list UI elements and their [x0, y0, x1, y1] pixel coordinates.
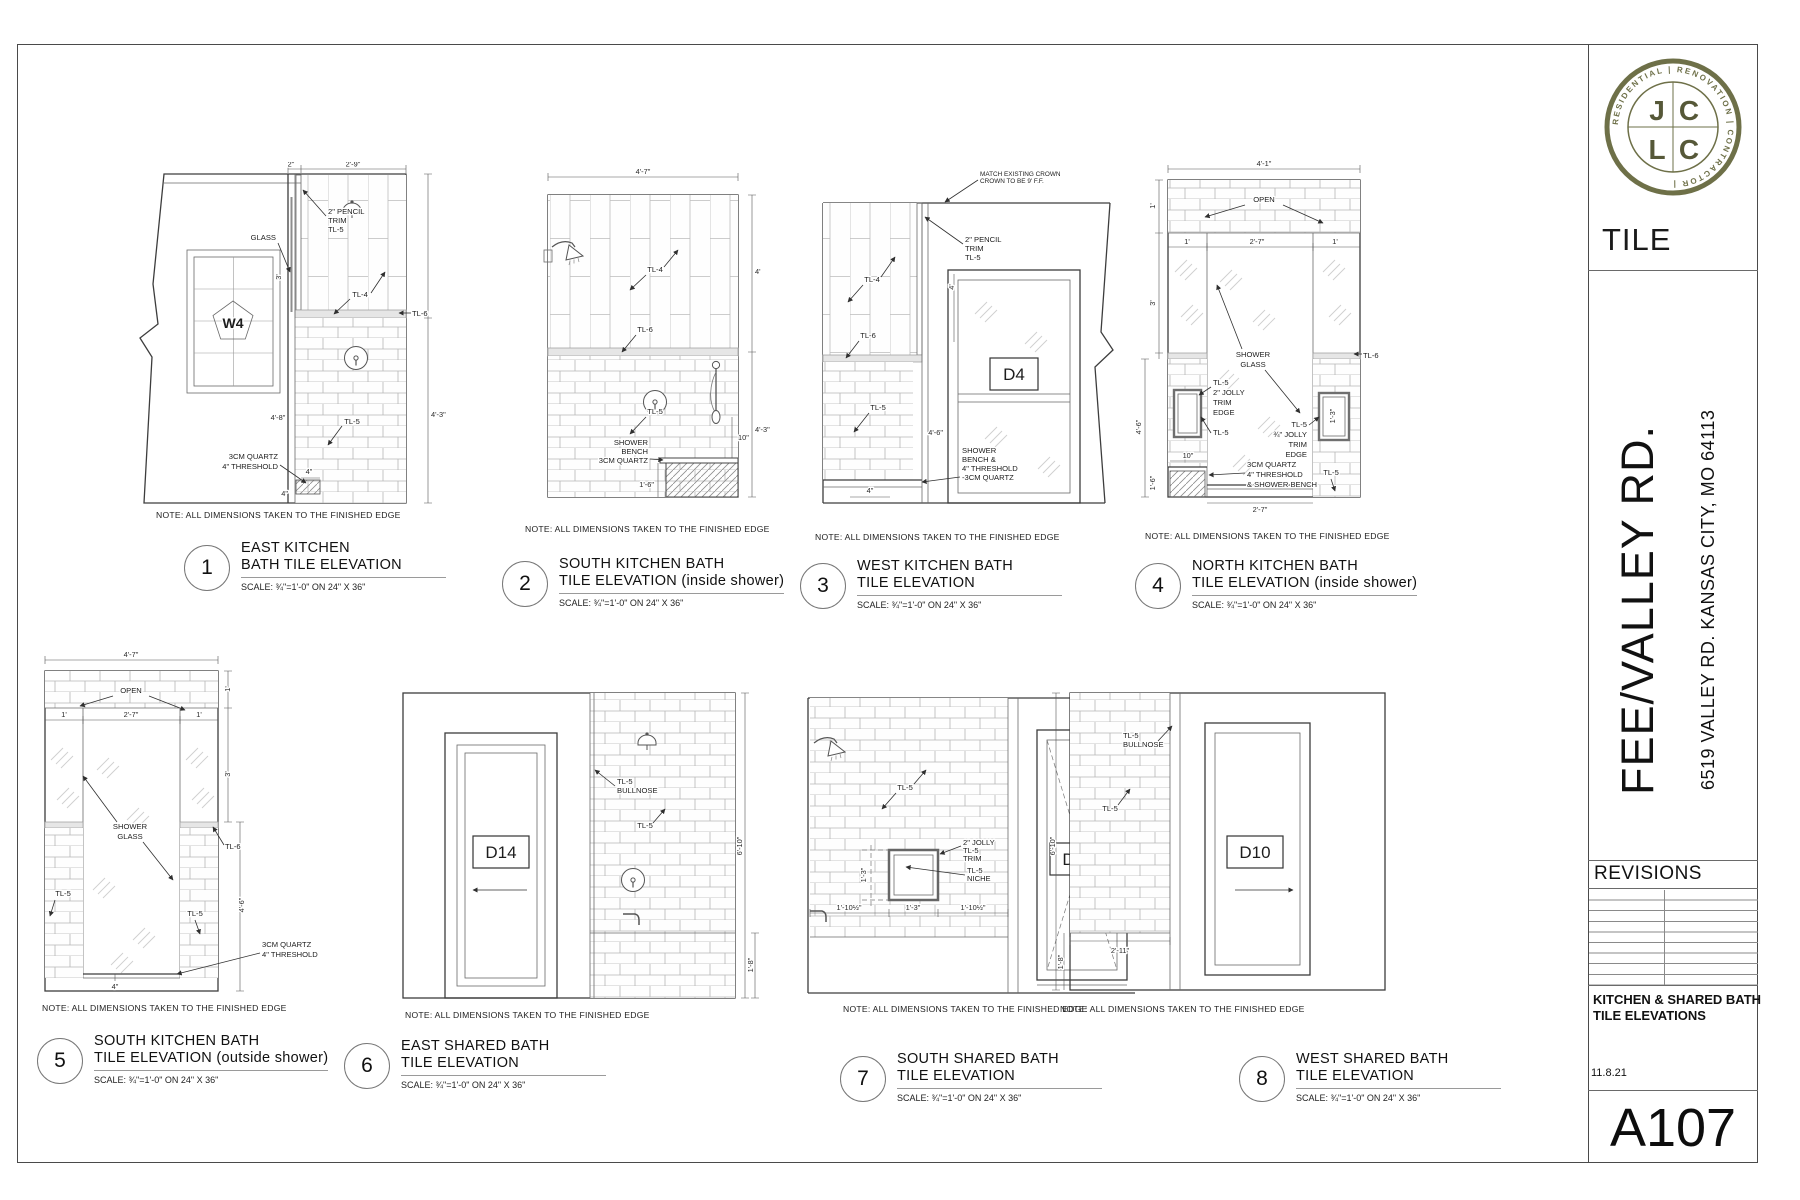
svg-text:3CM QUARTZ: 3CM QUARTZ	[1247, 460, 1297, 469]
company-logo: RESIDENTIAL | RENOVATION | CONTRACTOR | …	[1598, 52, 1748, 202]
svg-text:4'-6": 4'-6"	[237, 897, 246, 912]
revisions-table-divider	[1664, 890, 1665, 985]
svg-text:TL-6: TL-6	[1363, 351, 1379, 360]
drawing-title: SOUTH KITCHEN BATH	[559, 556, 784, 573]
sheet-title: KITCHEN & SHARED BATH TILE ELEVATIONS	[1593, 992, 1761, 1024]
center-glass	[83, 758, 180, 978]
svg-text:2" PENCIL: 2" PENCIL	[965, 235, 1001, 244]
svg-text:1': 1'	[1184, 237, 1190, 246]
svg-text:TL-5: TL-5	[55, 889, 71, 898]
titleblock-rule	[1588, 860, 1758, 861]
drawing-number-bubble: 5	[37, 1038, 83, 1084]
svg-text:1'-10½": 1'-10½"	[961, 903, 986, 912]
elevation-4-north-kitchen-inside: OPEN 4'-1" 1' 2'-7" 1' 1' 3' 4'-6" 10" 1…	[1095, 155, 1395, 515]
svg-text:1'-10½": 1'-10½"	[837, 903, 862, 912]
svg-text:CROWN TO BE 9' F.F.: CROWN TO BE 9' F.F.	[980, 178, 1044, 185]
door: D14	[445, 733, 557, 998]
svg-text:EDGE: EDGE	[1213, 408, 1235, 417]
svg-text:4'-6": 4'-6"	[928, 428, 943, 437]
svg-text:2'-7": 2'-7"	[1253, 505, 1268, 514]
open-band: OPEN	[45, 671, 218, 710]
svg-text:2'-9": 2'-9"	[346, 162, 361, 169]
drawing-title: EAST SHARED BATH	[401, 1038, 606, 1055]
svg-text:SHOWER: SHOWER	[113, 822, 148, 831]
svg-text:GLASS: GLASS	[251, 233, 276, 242]
dimension-note: NOTE: ALL DIMENSIONS TAKEN TO THE FINISH…	[156, 510, 401, 520]
titleblock-divider	[1588, 44, 1589, 1163]
svg-text:4": 4"	[867, 486, 874, 495]
dimension-note: NOTE: ALL DIMENSIONS TAKEN TO THE FINISH…	[815, 532, 1060, 542]
svg-text:4": 4"	[306, 467, 313, 476]
drawing-title: SOUTH KITCHEN BATH	[94, 1033, 328, 1050]
svg-text:TL-6: TL-6	[637, 325, 653, 334]
elevation-3-west-kitchen: D4 4' 4'-6" 4" MATCH EXISTING CROWN CROW…	[810, 162, 1120, 512]
drawing-scale: SCALE: ¾"=1'-0" ON 24" X 36"	[94, 1075, 328, 1085]
dimension-note: NOTE: ALL DIMENSIONS TAKEN TO THE FINISH…	[525, 524, 770, 534]
svg-text:¾" JOLLY: ¾" JOLLY	[1273, 430, 1307, 439]
svg-text:4": 4"	[281, 489, 288, 498]
svg-text:2'-7": 2'-7"	[124, 710, 139, 719]
threshold-hatch	[296, 480, 320, 494]
svg-text:1': 1'	[196, 710, 202, 719]
svg-text:TL-5: TL-5	[897, 783, 913, 792]
drawing-title-2: 2 SOUTH KITCHEN BATHTILE ELEVATION (insi…	[502, 556, 784, 608]
drawing-title-3: 3 WEST KITCHEN BATHTILE ELEVATION SCALE:…	[800, 558, 1062, 610]
revisions-header: REVISIONS	[1594, 863, 1702, 885]
svg-text:4": 4"	[112, 982, 119, 991]
svg-text:TL-4: TL-4	[647, 265, 663, 274]
svg-text:4" THRESHOLD: 4" THRESHOLD	[1247, 470, 1303, 479]
drawing-scale: SCALE: ¾"=1'-0" ON 24" X 36"	[1192, 600, 1417, 610]
svg-text:BULLNOSE: BULLNOSE	[617, 786, 658, 795]
svg-text:TL-5: TL-5	[187, 909, 203, 918]
drawing-number-bubble: 1	[184, 545, 230, 591]
svg-text:1': 1'	[1332, 237, 1338, 246]
svg-text:1': 1'	[61, 710, 67, 719]
svg-text:SHOWER: SHOWER	[614, 438, 649, 447]
svg-text:2" PENCIL: 2" PENCIL	[328, 207, 364, 216]
valve-icon	[345, 347, 368, 370]
elevation-2-south-kitchen-inside: 4'-7" 4' 4'-3" 10" 1'-6" TL-4 TL-6 TL-5 …	[470, 162, 780, 512]
svg-text:TRIM: TRIM	[963, 854, 982, 863]
svg-text:1'-3": 1'-3"	[1328, 408, 1337, 423]
dimension-note: NOTE: ALL DIMENSIONS TAKEN TO THE FINISH…	[1145, 531, 1390, 541]
svg-text:4'-7": 4'-7"	[636, 167, 651, 176]
svg-text:SHOWER: SHOWER	[962, 446, 997, 455]
svg-text:10": 10"	[738, 433, 749, 442]
svg-text:1': 1'	[1148, 203, 1157, 209]
drawing-title: NORTH KITCHEN BATH	[1192, 558, 1417, 575]
svg-text:3': 3'	[274, 274, 283, 280]
svg-text:TL-5: TL-5	[1213, 378, 1229, 387]
shower-bench	[660, 458, 738, 497]
dimension-note: NOTE: ALL DIMENSIONS TAKEN TO THE FINISH…	[843, 1004, 1088, 1014]
door: D10	[1205, 723, 1310, 975]
svg-text:-3CM QUARTZ: -3CM QUARTZ	[962, 473, 1014, 482]
drawing-title: SOUTH SHARED BATH	[897, 1051, 1102, 1068]
drawing-number-bubble: 7	[840, 1056, 886, 1102]
sheet-date: 11.8.21	[1591, 1067, 1627, 1079]
svg-text:3CM QUARTZ: 3CM QUARTZ	[229, 452, 279, 461]
svg-text:6'-10": 6'-10"	[1050, 836, 1057, 855]
svg-text:4'-6": 4'-6"	[1134, 419, 1143, 434]
svg-text:TL-4: TL-4	[864, 275, 880, 284]
svg-text:EDGE: EDGE	[1285, 450, 1307, 459]
svg-text:TL-5: TL-5	[344, 417, 360, 426]
dimensions: 6'-10" 1'-8"	[735, 693, 759, 998]
svg-text:4'-7": 4'-7"	[124, 650, 139, 659]
elevation-1-east-kitchen: W4 2" 2'-9" 3' 4'-8" 4'-3" 4" 4" GLASS 2…	[128, 162, 458, 512]
drawing-title-8: 8 WEST SHARED BATHTILE ELEVATION SCALE: …	[1239, 1051, 1501, 1103]
svg-text:4'-3": 4'-3"	[755, 425, 770, 434]
svg-text:BENCH &: BENCH &	[962, 455, 996, 464]
svg-text:3CM QUARTZ: 3CM QUARTZ	[262, 940, 312, 949]
svg-text:& SHOWER BENCH: & SHOWER BENCH	[1247, 480, 1317, 489]
drawing-scale: SCALE: ¾"=1'-0" ON 24" X 36"	[857, 600, 1062, 610]
svg-text:3': 3'	[1148, 300, 1157, 306]
dimension-note: NOTE: ALL DIMENSIONS TAKEN TO THE FINISH…	[405, 1010, 650, 1020]
tile-field	[590, 693, 735, 998]
titleblock-rule	[1588, 888, 1758, 889]
svg-text:1'-6": 1'-6"	[639, 480, 654, 489]
svg-text:4" THRESHOLD: 4" THRESHOLD	[962, 464, 1018, 473]
drawing-title-7: 7 SOUTH SHARED BATHTILE ELEVATION SCALE:…	[840, 1051, 1102, 1103]
svg-text:1'-8": 1'-8"	[1056, 954, 1065, 969]
svg-text:OPEN: OPEN	[120, 686, 142, 695]
svg-text:TL-5: TL-5	[1102, 804, 1118, 813]
svg-text:3CM QUARTZ: 3CM QUARTZ	[599, 456, 649, 465]
logo-letter: L	[1648, 134, 1665, 165]
svg-text:GLASS: GLASS	[117, 832, 142, 841]
drawing-scale: SCALE: ¾"=1'-0" ON 24" X 36"	[1296, 1093, 1501, 1103]
svg-text:TL-4: TL-4	[352, 290, 368, 299]
drawing-title: EAST KITCHEN	[241, 540, 446, 557]
svg-text:1'-6": 1'-6"	[1148, 475, 1157, 490]
svg-text:TRIM: TRIM	[1288, 440, 1307, 449]
svg-text:4" THRESHOLD: 4" THRESHOLD	[262, 950, 318, 959]
door-tag: D10	[1239, 843, 1270, 862]
revisions-table	[1589, 890, 1758, 985]
titleblock-rule	[1588, 985, 1758, 986]
discipline-label: TILE	[1602, 222, 1671, 258]
door-tag: D14	[485, 843, 516, 862]
project-name: FEE/VALLEY RD.	[1612, 295, 1664, 795]
elevation-6-east-shared: D14 6'-10" 1'-8" TL-5 BULLNOSE TL-5	[395, 678, 763, 1012]
svg-text:MATCH EXISTING CROWN: MATCH EXISTING CROWN	[980, 171, 1061, 178]
svg-text:NICHE: NICHE	[967, 874, 991, 883]
drawing-number-bubble: 4	[1135, 563, 1181, 609]
svg-text:TL-5: TL-5	[647, 407, 663, 416]
drawing-scale: SCALE: ¾"=1'-0" ON 24" X 36"	[897, 1093, 1102, 1103]
svg-text:BENCH: BENCH	[621, 447, 648, 456]
open-band: OPEN	[1168, 180, 1360, 233]
svg-text:1'-8": 1'-8"	[746, 957, 755, 972]
svg-text:TL-5: TL-5	[1291, 420, 1307, 429]
svg-text:TL-6: TL-6	[860, 331, 876, 340]
svg-text:TRIM: TRIM	[1213, 398, 1232, 407]
elevation-5-south-kitchen-outside: OPEN 4'-7" 1' 2'-7" 1' 1' 3' 4'-6" 4" SH…	[25, 648, 325, 1000]
door-tag: D4	[1003, 365, 1025, 384]
svg-text:4': 4'	[947, 284, 956, 290]
svg-text:TL-6: TL-6	[412, 309, 428, 318]
svg-text:TL-5: TL-5	[965, 253, 981, 262]
svg-text:1': 1'	[223, 686, 232, 692]
logo-letter: J	[1649, 95, 1665, 126]
tile-fields	[288, 174, 406, 503]
svg-text:TL-5: TL-5	[1213, 428, 1229, 437]
svg-text:2'-7": 2'-7"	[1250, 237, 1265, 246]
svg-text:TL-5: TL-5	[870, 403, 886, 412]
drawing-number-bubble: 6	[344, 1043, 390, 1089]
svg-text:3': 3'	[223, 771, 232, 777]
svg-text:6'-10": 6'-10"	[735, 836, 744, 855]
svg-text:2'-11": 2'-11"	[1111, 946, 1130, 955]
svg-text:1'-3": 1'-3"	[859, 867, 868, 882]
niche	[889, 850, 938, 900]
svg-text:1'-3": 1'-3"	[906, 903, 921, 912]
svg-text:GLASS: GLASS	[1240, 360, 1265, 369]
logo-letter: C	[1679, 95, 1699, 126]
drawing-sheet: W4 2" 2'-9" 3' 4'-8" 4'-3" 4" 4" GLASS 2…	[0, 0, 1800, 1200]
drawing-scale: SCALE: ¾"=1'-0" ON 24" X 36"	[559, 598, 784, 608]
window-tag: W4	[223, 315, 244, 331]
svg-text:TL-5: TL-5	[1323, 468, 1339, 477]
drawing-title: WEST SHARED BATH	[1296, 1051, 1501, 1068]
svg-text:4': 4'	[755, 267, 761, 276]
svg-text:4" THRESHOLD: 4" THRESHOLD	[222, 462, 278, 471]
dimension-note: NOTE: ALL DIMENSIONS TAKEN TO THE FINISH…	[1060, 1004, 1305, 1014]
svg-text:4'-8": 4'-8"	[271, 413, 286, 422]
drawing-title: WEST KITCHEN BATH	[857, 558, 1062, 575]
drawing-title-1: 1 EAST KITCHENBATH TILE ELEVATION SCALE:…	[184, 540, 446, 592]
svg-text:BULLNOSE: BULLNOSE	[1123, 740, 1164, 749]
svg-text:2": 2"	[288, 162, 295, 169]
drawing-title-6: 6 EAST SHARED BATHTILE ELEVATION SCALE: …	[344, 1038, 606, 1090]
project-address: 6519 VALLEY RD. KANSAS CITY, MO 64113	[1698, 320, 1719, 790]
drawing-number-bubble: 2	[502, 561, 548, 607]
titleblock-rule	[1588, 1090, 1758, 1091]
drawing-number-bubble: 8	[1239, 1056, 1285, 1102]
dimension-note: NOTE: ALL DIMENSIONS TAKEN TO THE FINISH…	[42, 1003, 287, 1013]
svg-text:TL-6: TL-6	[225, 842, 241, 851]
elevation-8-west-shared: D10 6'-10" 2'-11" 1'-8" TL-5 BULLNOSE TL…	[1050, 678, 1395, 1012]
tile-fields	[823, 203, 928, 503]
svg-text:TL-5: TL-5	[617, 777, 633, 786]
svg-text:2" JOLLY: 2" JOLLY	[1213, 388, 1245, 397]
svg-text:TL-5: TL-5	[1123, 731, 1139, 740]
svg-text:4'-1": 4'-1"	[1257, 159, 1272, 168]
svg-text:OPEN: OPEN	[1253, 195, 1275, 204]
drawing-title-4: 4 NORTH KITCHEN BATHTILE ELEVATION (insi…	[1135, 558, 1417, 610]
drawing-scale: SCALE: ¾"=1'-0" ON 24" X 36"	[401, 1080, 606, 1090]
svg-text:SHOWER: SHOWER	[1236, 350, 1271, 359]
drawing-number-bubble: 3	[800, 563, 846, 609]
svg-text:TL-5: TL-5	[328, 225, 344, 234]
side-columns	[45, 708, 218, 978]
sheet-number: A107	[1588, 1092, 1758, 1163]
svg-text:10": 10"	[1183, 451, 1194, 460]
titleblock-rule	[1588, 270, 1758, 271]
svg-text:TL-5: TL-5	[637, 821, 653, 830]
svg-text:TRIM: TRIM	[328, 216, 347, 225]
svg-text:4'-3": 4'-3"	[431, 410, 446, 419]
logo-letter: C	[1679, 134, 1699, 165]
window: W4	[187, 250, 280, 393]
drawing-title-5: 5 SOUTH KITCHEN BATHTILE ELEVATION (outs…	[37, 1033, 328, 1085]
drawing-scale: SCALE: ¾"=1'-0" ON 24" X 36"	[241, 582, 446, 592]
valve-icon	[622, 869, 645, 892]
svg-text:TRIM: TRIM	[965, 244, 984, 253]
